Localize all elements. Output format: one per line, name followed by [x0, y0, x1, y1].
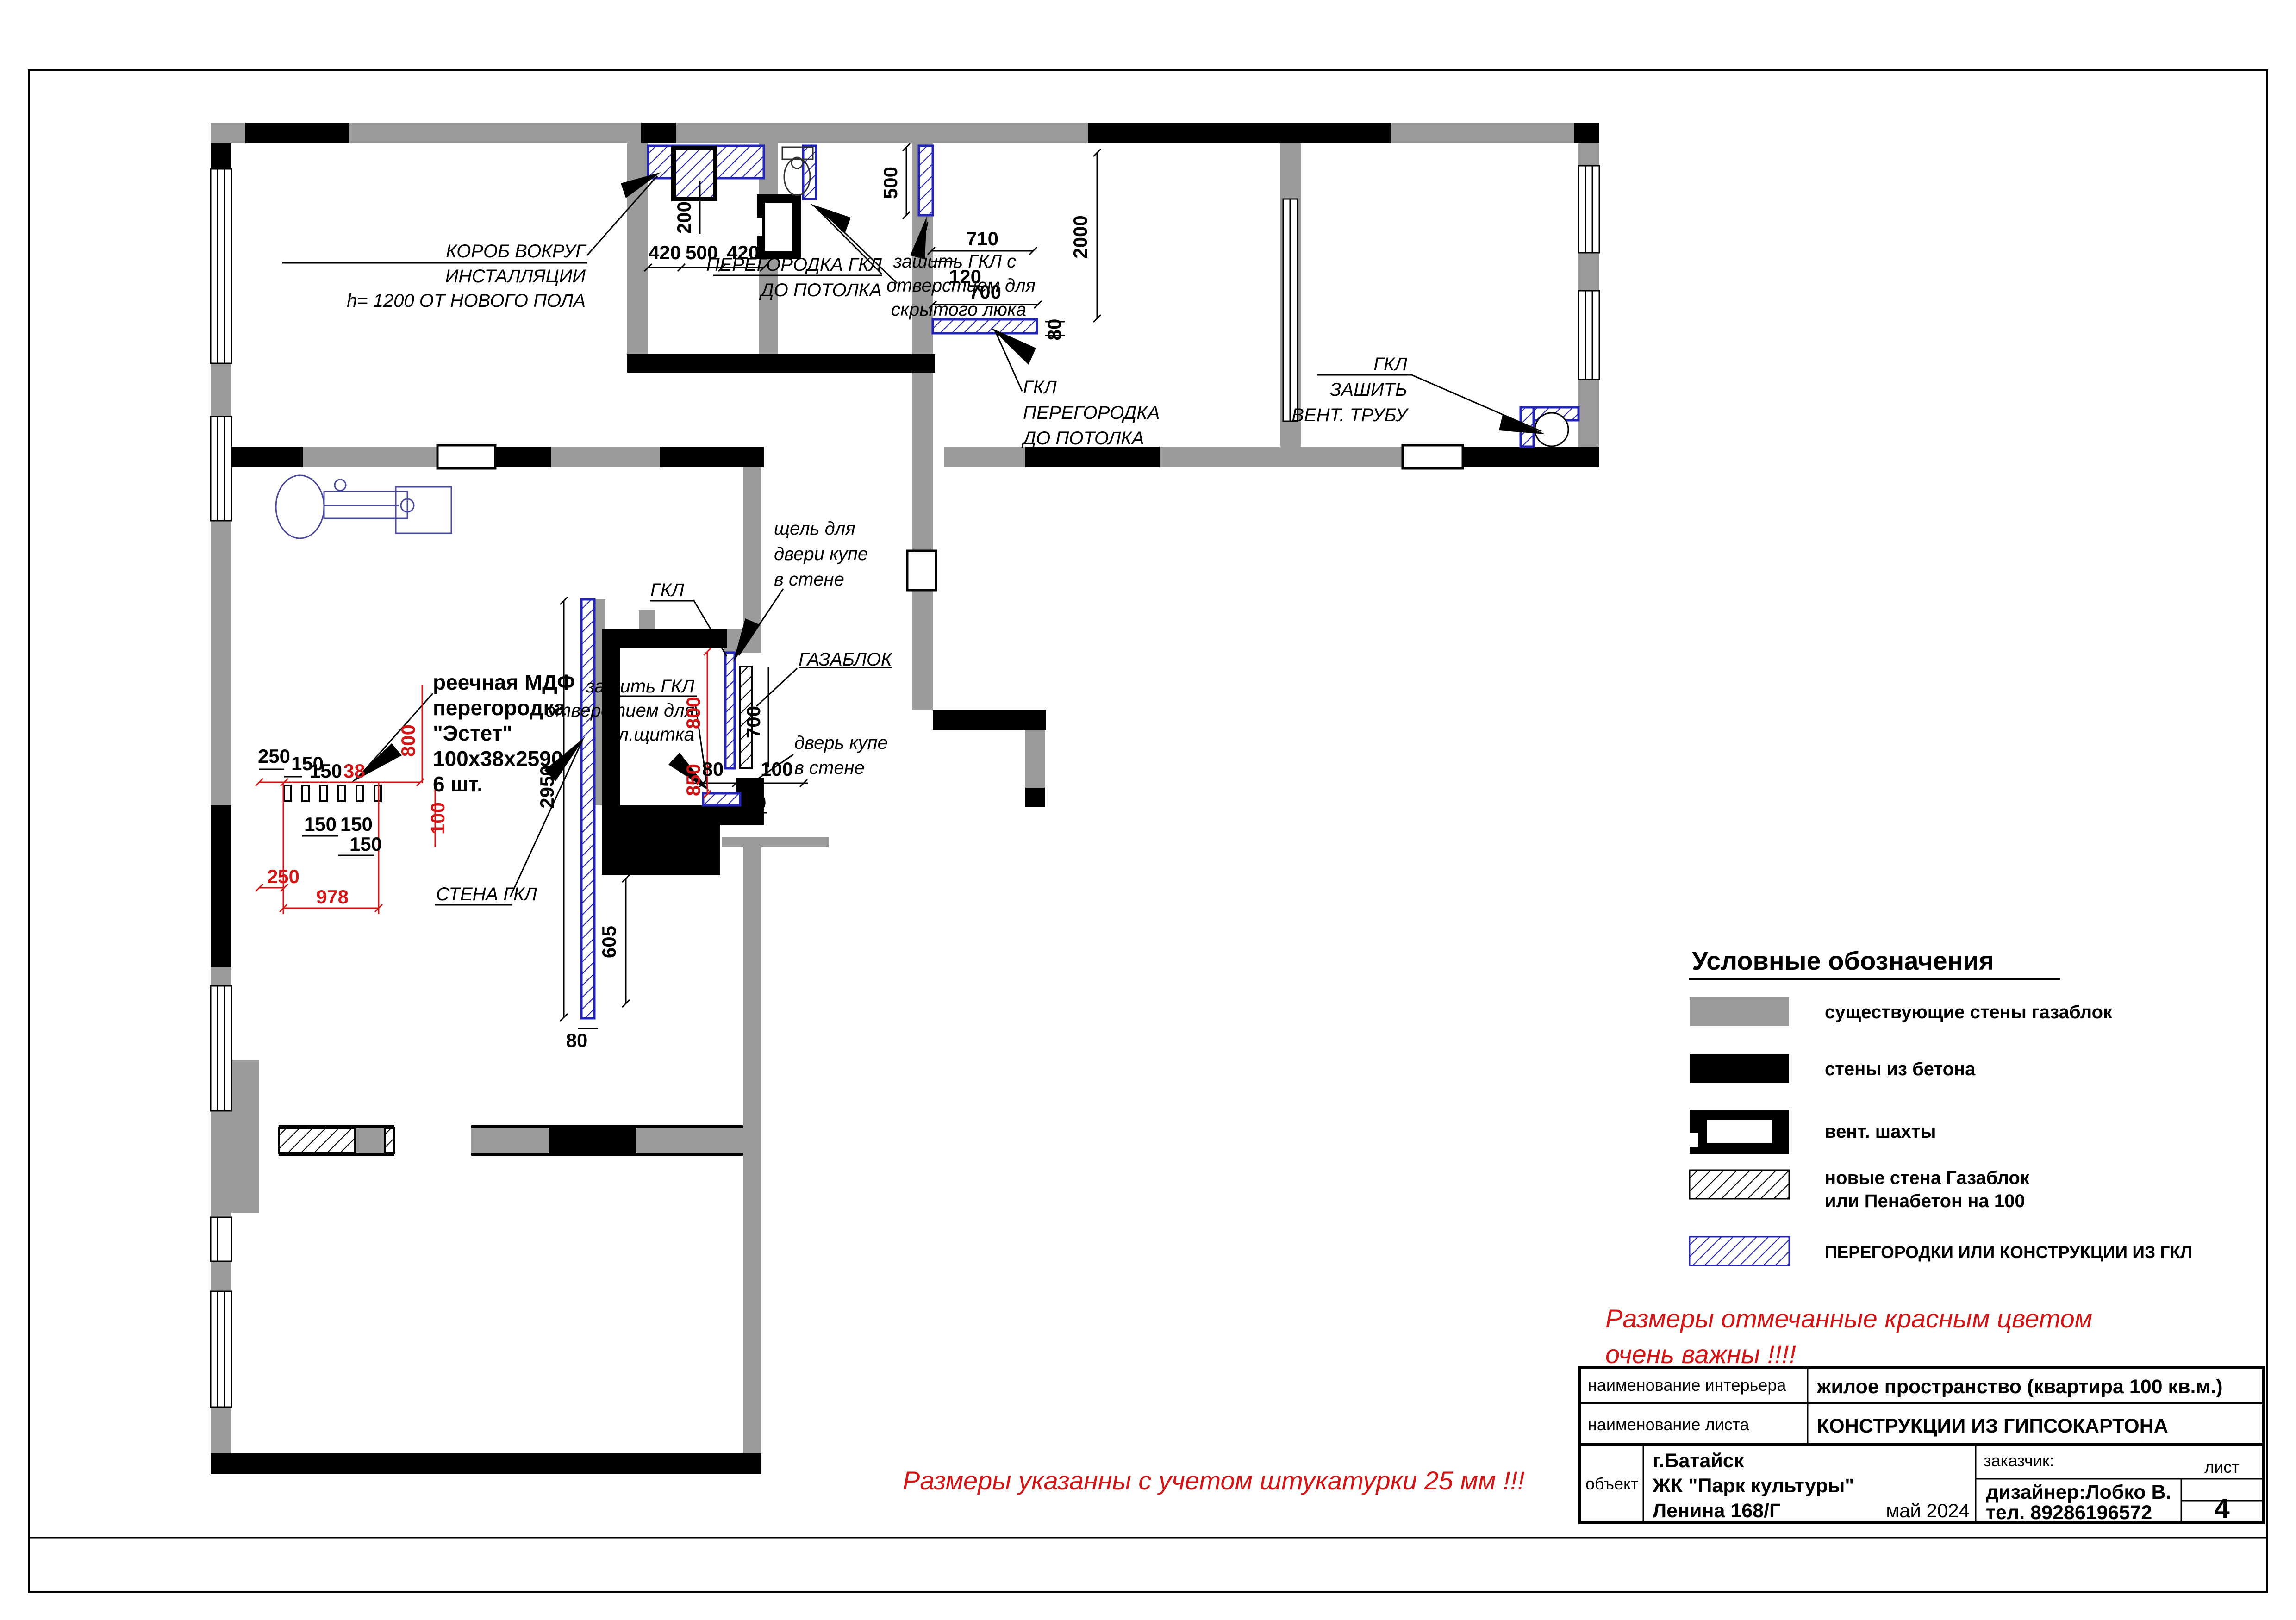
legend-row-vent: вент. шахты: [1690, 1110, 1936, 1154]
tb-row2-value: КОНСТРУКЦИИ ИЗ ГИПСОКАРТОНА: [1817, 1415, 2168, 1437]
label-gkl: ГКЛ: [650, 580, 684, 600]
svg-text:вент. шахты: вент. шахты: [1825, 1122, 1936, 1142]
swatch-existing-gray: [1690, 997, 1789, 1026]
callout-texts: КОРОБ ВОКРУГ ИНСТАЛЛЯЦИИ h= 1200 ОТ НОВО…: [347, 241, 1409, 904]
svg-text:ДО ПОТОЛКА: ДО ПОТОЛКА: [759, 280, 882, 300]
title-block: наименование интерьера жилое пространств…: [1580, 1368, 2264, 1524]
svg-text:710: 710: [966, 228, 998, 249]
window-left-1: [211, 169, 231, 363]
tb-row1-value: жилое пространство (квартира 100 кв.м.): [1816, 1376, 2223, 1398]
svg-text:38: 38: [343, 760, 365, 782]
walls-concrete: [211, 123, 1599, 1474]
tb-object-complex: ЖК "Парк культуры": [1652, 1475, 1854, 1497]
faucet: [335, 480, 346, 491]
svg-text:800: 800: [397, 724, 419, 757]
window-left-4: [211, 1217, 231, 1261]
tb-sheet-label: лист: [2204, 1458, 2240, 1477]
svg-text:стены из бетона: стены из бетона: [1825, 1059, 1976, 1079]
svg-text:эл.щитка: эл.щитка: [610, 724, 694, 745]
glass-partition: [1283, 199, 1298, 421]
label-gkl-stub: ГКЛ: [1023, 377, 1057, 398]
tb-object-address: Ленина 168/Г: [1653, 1500, 1780, 1522]
svg-text:250: 250: [258, 745, 290, 767]
gkl-panel-stub: [703, 793, 740, 805]
walls-existing-gazablok: [211, 123, 1599, 1474]
red-note-line2: очень важны !!!!: [1605, 1340, 1797, 1369]
svg-text:перегородка: перегородка: [433, 696, 566, 720]
svg-text:ДО ПОТОЛКА: ДО ПОТОЛКА: [1021, 428, 1144, 449]
vent-shaft-bathroom: [757, 194, 801, 259]
window-bottom-box-1: [437, 445, 495, 468]
svg-text:ВЕНТ. ТРУБУ: ВЕНТ. ТРУБУ: [1291, 405, 1409, 425]
gazablok-partition-seg-small: [385, 1128, 394, 1153]
svg-text:ПЕРЕГОРОДКИ ИЛИ КОНСТРУКЦИИ ИЗ: ПЕРЕГОРОДКИ ИЛИ КОНСТРУКЦИИ ИЗ ГКЛ: [1825, 1243, 2192, 1262]
window-right-1: [1578, 166, 1599, 253]
label-pocket-door: дверь купе: [794, 733, 888, 753]
svg-text:новые стена Газаблок: новые стена Газаблок: [1825, 1168, 2030, 1188]
svg-text:h= 1200 ОТ НОВОГО ПОЛА: h= 1200 ОТ НОВОГО ПОЛА: [347, 291, 586, 311]
svg-text:50: 50: [745, 791, 767, 813]
legend-row-existing: существующие стены газаблок: [1690, 997, 2113, 1026]
svg-text:80: 80: [1043, 319, 1065, 341]
svg-text:605: 605: [598, 926, 620, 958]
svg-text:скрытого люка: скрытого люка: [891, 299, 1026, 320]
washing-machine: [396, 487, 451, 533]
tb-sheet-number: 4: [2214, 1493, 2230, 1524]
svg-text:в стене: в стене: [774, 569, 844, 590]
gkl-slot-strip: [725, 653, 735, 768]
svg-text:2950: 2950: [536, 765, 558, 808]
window-left-3: [211, 986, 231, 1111]
label-vent-pipe: ГКЛ: [1373, 354, 1407, 374]
mdf-slats: [284, 785, 381, 801]
svg-text:700: 700: [742, 706, 764, 738]
sanitary-fixtures: [276, 147, 813, 538]
label-mdf: реечная МДФ: [433, 670, 575, 694]
svg-text:150: 150: [349, 833, 382, 855]
svg-text:"Эстет": "Эстет": [433, 721, 512, 745]
arrow-wc-partition: [810, 204, 851, 232]
tb-row2-label: наименование листа: [1588, 1415, 1750, 1434]
svg-text:200: 200: [673, 201, 695, 234]
legend-row-concrete: стены из бетона: [1690, 1054, 1976, 1083]
tb-row1-label: наименование интерьера: [1588, 1376, 1786, 1395]
svg-text:850: 850: [682, 764, 704, 796]
svg-text:100: 100: [761, 758, 793, 780]
label-el-panel: зашить ГКЛ: [586, 676, 695, 697]
sink: [276, 475, 324, 538]
gkl-hatch-strip: [919, 146, 933, 215]
svg-text:2000: 2000: [1069, 215, 1091, 258]
svg-text:150: 150: [310, 760, 342, 782]
svg-text:250: 250: [267, 866, 299, 887]
label-door-slot: щель для: [774, 518, 855, 539]
label-stena-gkl: СТЕНА ГКЛ: [436, 884, 537, 904]
svg-text:800: 800: [682, 697, 704, 729]
gazablok-partition-seg: [279, 1128, 355, 1153]
window-corridor-box: [907, 551, 936, 590]
legend-row-gkl: ПЕРЕГОРОДКИ ИЛИ КОНСТРУКЦИИ ИЗ ГКЛ: [1690, 1237, 2192, 1265]
svg-text:отверстием для: отверстием для: [545, 700, 694, 721]
svg-text:100: 100: [427, 802, 449, 835]
label-korob: КОРОБ ВОКРУГ: [446, 241, 587, 262]
gkl-wall-stena: [581, 599, 594, 1018]
tb-designer: дизайнер:Лобко В.: [1986, 1481, 2171, 1503]
svg-text:существующие стены газаблок: существующие стены газаблок: [1825, 1002, 2113, 1022]
tb-customer-label: заказчик:: [1984, 1451, 2054, 1470]
svg-text:ИНСТАЛЛЯЦИИ: ИНСТАЛЛЯЦИИ: [445, 266, 586, 287]
svg-text:978: 978: [316, 886, 349, 908]
svg-text:или Пенабетон на 100: или Пенабетон на 100: [1825, 1191, 2025, 1211]
gkl-elements: [581, 146, 1578, 1018]
svg-text:420: 420: [727, 242, 759, 263]
gkl-room-stub: [933, 319, 1037, 333]
plaster-note: Размеры указанны с учетом штукатурки 25 …: [903, 1466, 1525, 1495]
legend: Условные обозначения существующие стены …: [1689, 946, 2192, 1265]
svg-text:700: 700: [969, 281, 1001, 303]
floor-plan-sheet: КОРОБ ВОКРУГ ИНСТАЛЛЯЦИИ h= 1200 ОТ НОВО…: [0, 0, 2296, 1620]
svg-text:150: 150: [304, 813, 337, 835]
tb-object-label: объект: [1585, 1474, 1639, 1493]
legend-title: Условные обозначения: [1692, 946, 1994, 975]
window-bottom-box-2: [1403, 445, 1463, 468]
tb-object-city: г.Батайск: [1653, 1450, 1744, 1472]
windows: [211, 166, 1599, 1407]
label-mdf-qty: 6 шт.: [433, 772, 483, 796]
window-left-5: [211, 1291, 231, 1407]
gkl-korob-notch: [674, 148, 715, 199]
svg-text:ЗАШИТЬ: ЗАШИТЬ: [1330, 380, 1407, 400]
svg-text:в стене: в стене: [794, 758, 865, 778]
svg-text:ПЕРЕГОРОДКА: ПЕРЕГОРОДКА: [1023, 403, 1160, 423]
svg-text:420: 420: [649, 242, 681, 263]
svg-text:150: 150: [340, 813, 373, 835]
tb-phone: тел. 89286196572: [1986, 1502, 2152, 1524]
red-note-line1: Размеры отмечанные красным цветом: [1605, 1304, 2092, 1333]
svg-text:500: 500: [686, 242, 718, 263]
door-opening: [394, 1122, 471, 1157]
window-left-2: [211, 417, 231, 521]
label-gazablok: ГАЗАБЛОК: [799, 649, 893, 670]
vent-pipe: [1535, 413, 1568, 446]
tb-date: май 2024: [1886, 1500, 1970, 1521]
legend-row-new-gazablok: новые стена Газаблок или Пенабетон на 10…: [1690, 1168, 2030, 1211]
swatch-new-gazablok: [1690, 1170, 1789, 1199]
svg-text:80: 80: [702, 758, 724, 780]
window-right-2: [1578, 291, 1599, 380]
swatch-gkl-blue: [1690, 1237, 1789, 1265]
swatch-concrete-black: [1690, 1054, 1789, 1083]
svg-text:двери купе: двери купе: [774, 544, 868, 564]
svg-text:500: 500: [880, 167, 901, 199]
